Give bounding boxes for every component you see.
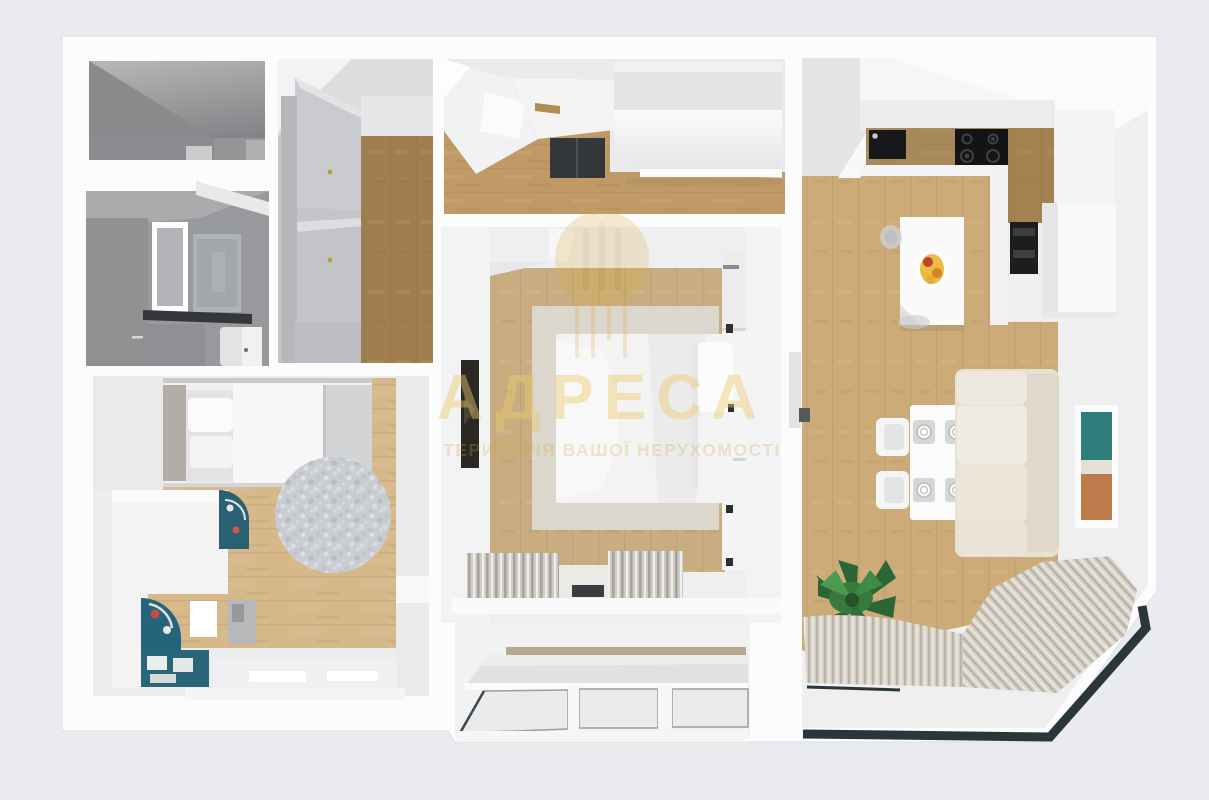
- svg-text:ТЕРИТОРІЯ ВАШОЇ НЕРУХОМОСТІ: ТЕРИТОРІЯ ВАШОЇ НЕРУХОМОСТІ: [443, 440, 781, 460]
- svg-text:АДРЕСА: АДРЕСА: [437, 361, 767, 433]
